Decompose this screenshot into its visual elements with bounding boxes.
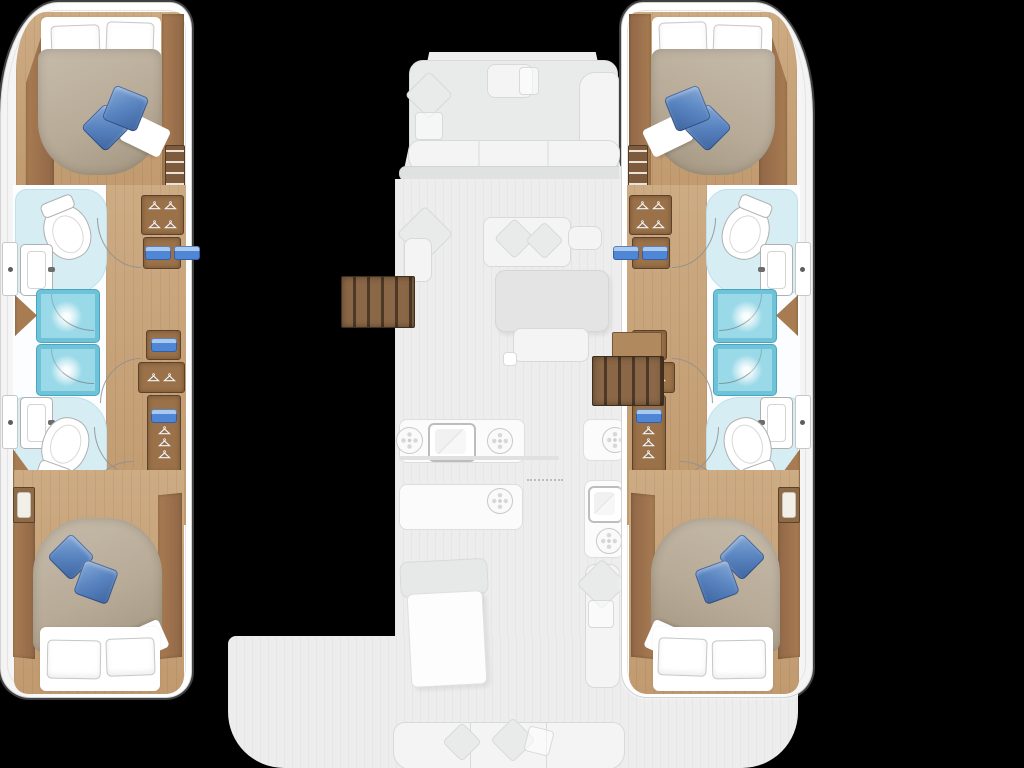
towel-shelf [632, 237, 670, 269]
shower-stall [37, 290, 99, 342]
pillow-icon [712, 640, 767, 680]
hanger-icon [643, 426, 656, 435]
hanger-icon [643, 450, 656, 459]
shower-stall [37, 345, 99, 395]
hanger-icon [158, 438, 171, 447]
saloon-table [495, 270, 609, 332]
hanger-icon [148, 220, 161, 229]
hanger-icon [158, 426, 171, 435]
wardrobe-hangers [629, 195, 672, 235]
hanger-icon [164, 220, 177, 229]
hanger-icon [643, 438, 656, 447]
towel-icon [642, 246, 668, 260]
catamaran-floorplan [0, 0, 1024, 768]
burner-icon [487, 488, 513, 514]
shower-stall [714, 290, 776, 342]
towel-icon [636, 409, 662, 423]
tall-locker [147, 395, 181, 473]
vanity-desk [778, 487, 800, 523]
hanger-icon [163, 373, 176, 382]
sink-icon [760, 244, 793, 296]
bow-cushion [415, 112, 443, 140]
tall-locker [632, 395, 666, 473]
shower-stall [714, 345, 776, 395]
cockpit-table [407, 590, 488, 688]
vanity-desk [13, 487, 35, 523]
porthole-icon [795, 242, 811, 296]
towel-icon [174, 246, 200, 260]
porthole-icon [795, 395, 811, 449]
porthole-icon [2, 395, 18, 449]
porthole-icon [2, 242, 18, 296]
wardrobe-hangers [141, 195, 184, 235]
hanger-icon [158, 450, 171, 459]
towel-icon [613, 246, 639, 260]
towel-icon [145, 246, 171, 260]
mast-base [503, 352, 517, 366]
pillow-icon [657, 637, 707, 677]
galley-sink-stbd [588, 486, 623, 523]
saloon-bench [513, 328, 589, 362]
cockpit-cushion [588, 600, 614, 628]
pillow-icon [105, 637, 155, 677]
stairs-landing-stbd [612, 332, 662, 357]
burner-icon [396, 427, 423, 454]
hanger-icon [636, 201, 649, 210]
towel-icon [151, 409, 177, 423]
door-track [527, 479, 563, 481]
towel-cabinet [146, 330, 181, 360]
hull-port [0, 2, 192, 698]
towel-shelf [143, 237, 181, 269]
burner-icon [487, 428, 513, 454]
hanger-icon [652, 201, 665, 210]
stairs-port [341, 276, 415, 328]
bow-hatch [519, 67, 539, 95]
hanger-icon [652, 220, 665, 229]
wardrobe-hangers [138, 362, 185, 393]
pillow-icon [47, 640, 102, 680]
sofa-side-pad [568, 226, 602, 250]
hanger-icon [636, 220, 649, 229]
burner-icon [596, 528, 622, 554]
stairs-stbd [592, 356, 664, 406]
hanger-icon [164, 201, 177, 210]
counter-edge [399, 456, 559, 460]
sink-icon [20, 244, 53, 296]
hanger-icon [147, 373, 160, 382]
hanger-icon [148, 201, 161, 210]
towel-icon [151, 338, 177, 352]
